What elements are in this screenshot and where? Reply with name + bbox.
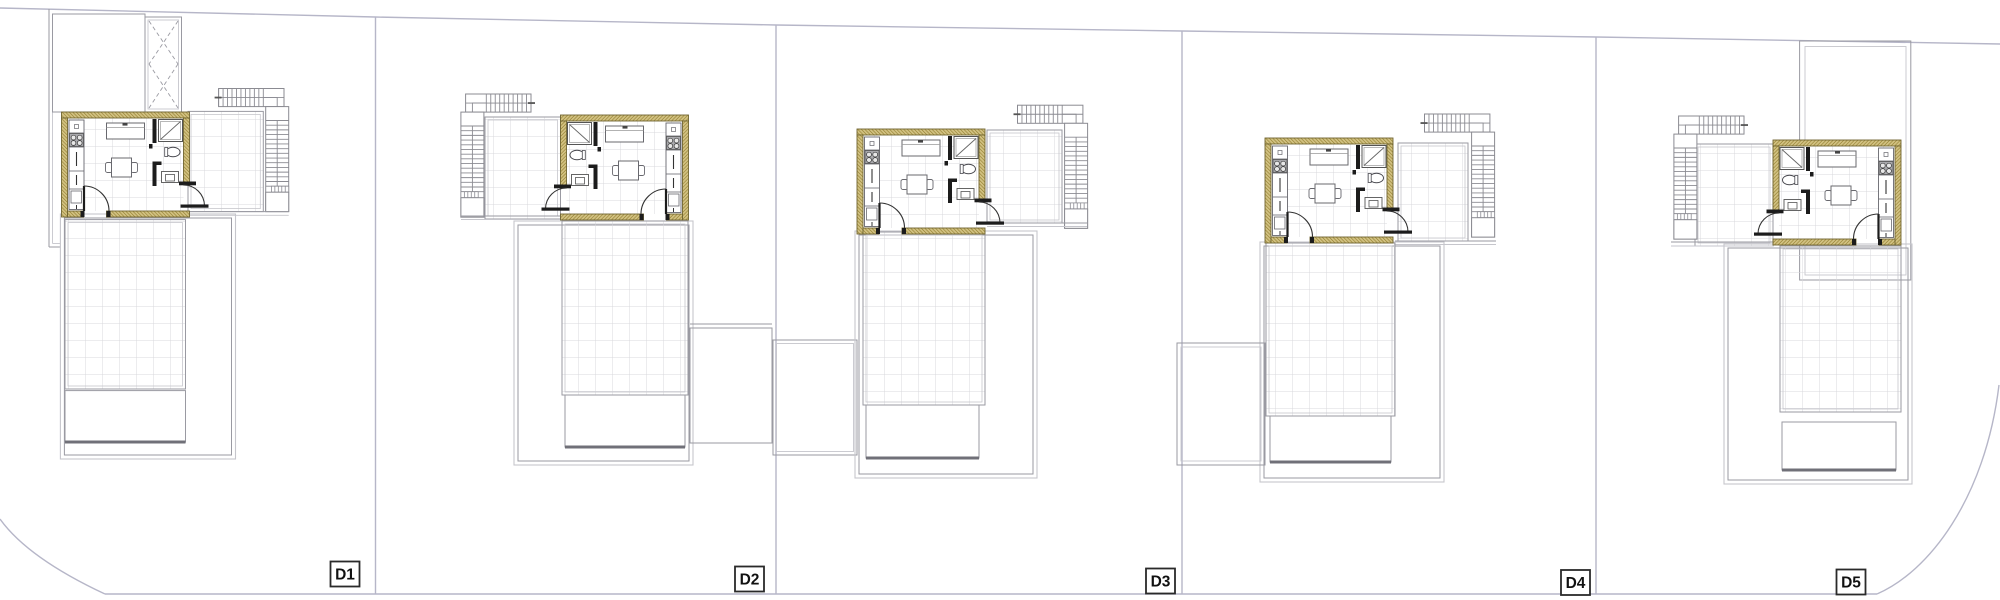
svg-text:D4: D4 xyxy=(1566,575,1586,592)
svg-text:D3: D3 xyxy=(1151,574,1171,591)
svg-text:D1: D1 xyxy=(335,567,355,584)
svg-text:D2: D2 xyxy=(740,572,760,589)
svg-text:D5: D5 xyxy=(1841,575,1861,592)
